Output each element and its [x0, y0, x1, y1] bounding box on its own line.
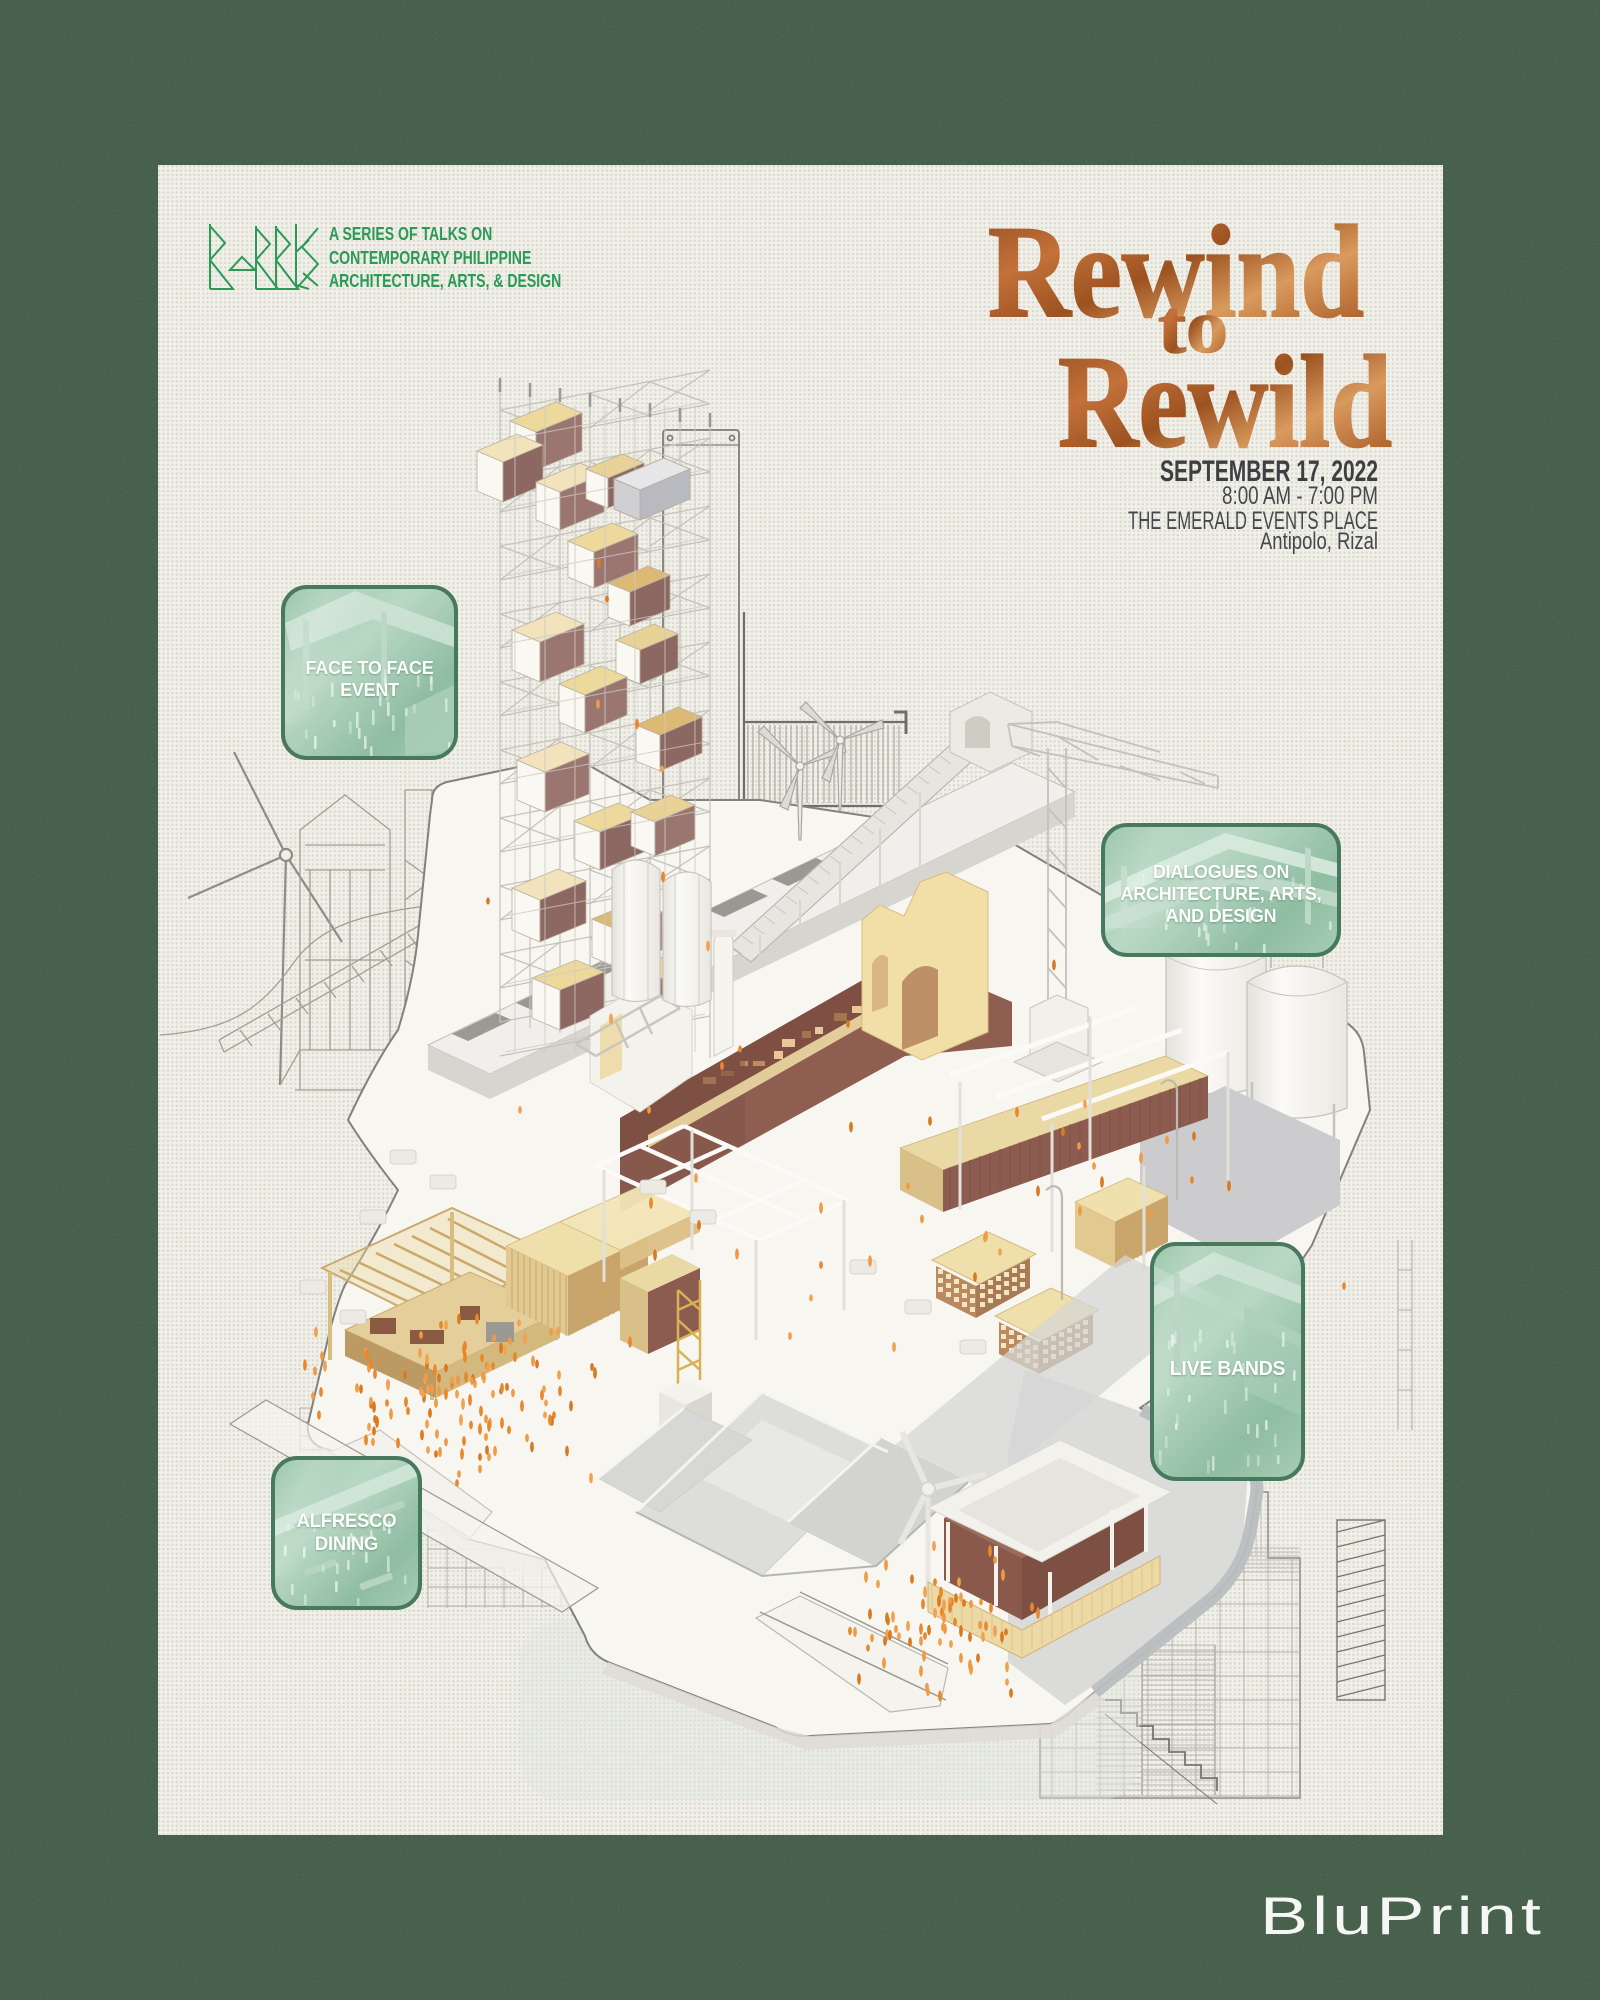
svg-text:8:00 AM - 7:00 PM: 8:00 AM - 7:00 PM: [1222, 482, 1378, 510]
svg-text:Antipolo, Rizal: Antipolo, Rizal: [1260, 528, 1378, 555]
svg-text:Rewild: Rewild: [1058, 328, 1392, 475]
